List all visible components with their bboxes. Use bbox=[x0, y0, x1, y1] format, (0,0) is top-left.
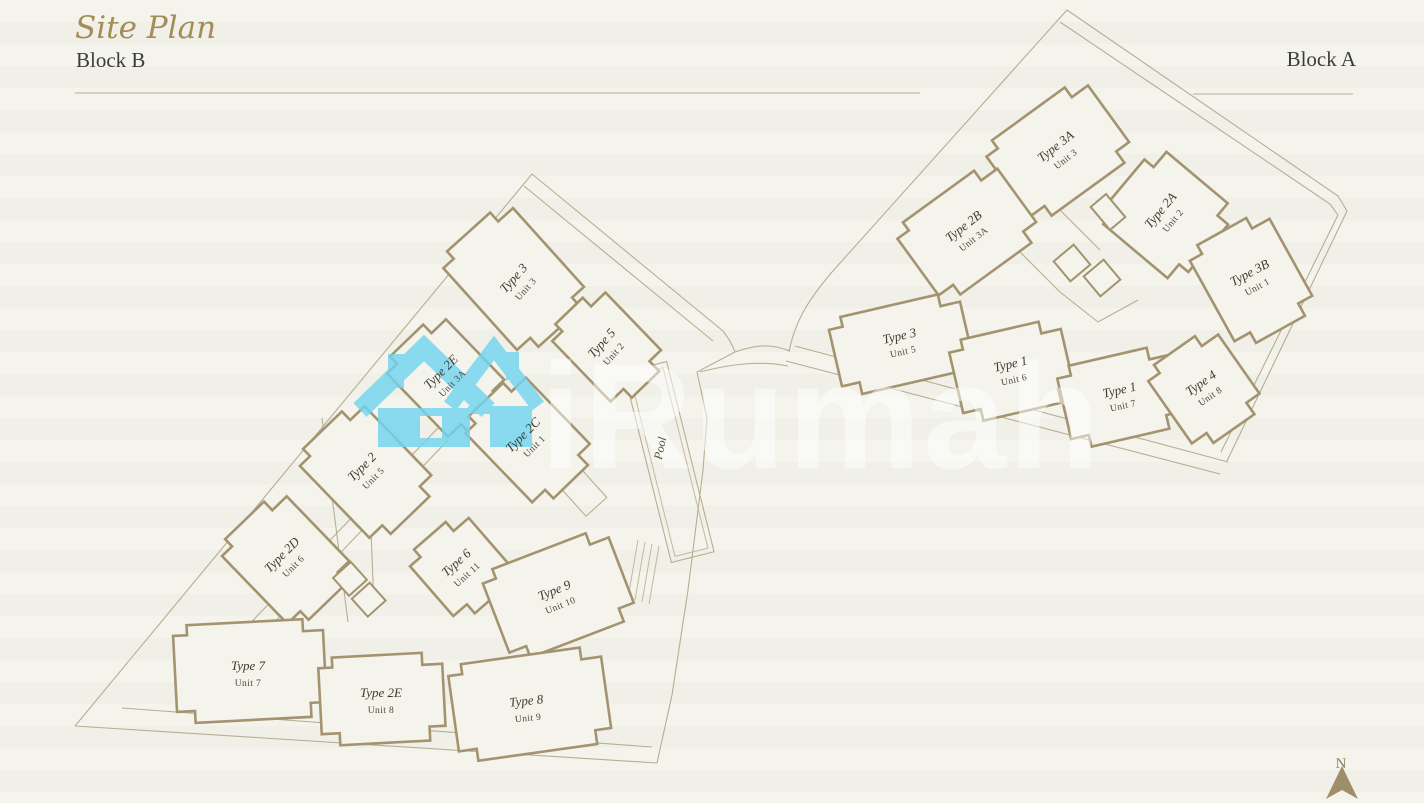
left-house-body-icon bbox=[378, 408, 468, 447]
unit-type-label: Type 2E bbox=[360, 685, 402, 700]
block-a-title: Block A bbox=[1287, 47, 1357, 71]
courtyard-a-structures bbox=[1054, 194, 1126, 296]
page-title: Site Plan bbox=[75, 10, 216, 46]
building-b-type2d-unit6 bbox=[215, 488, 359, 633]
pool-steps bbox=[628, 540, 659, 604]
unit-number-label: Unit 7 bbox=[235, 679, 261, 689]
north-arrow-icon bbox=[1326, 766, 1358, 799]
unit-type-label: Type 7 bbox=[231, 658, 266, 673]
unit-number-label: Unit 8 bbox=[368, 706, 394, 716]
building-a-type4-unit8 bbox=[1142, 325, 1267, 453]
site-plan-canvas: iRumah Type 3 Unit 3 Type 5 Unit 2 Type … bbox=[0, 0, 1424, 803]
compass: N bbox=[1326, 756, 1358, 799]
block-b-title: Block B bbox=[76, 48, 145, 72]
